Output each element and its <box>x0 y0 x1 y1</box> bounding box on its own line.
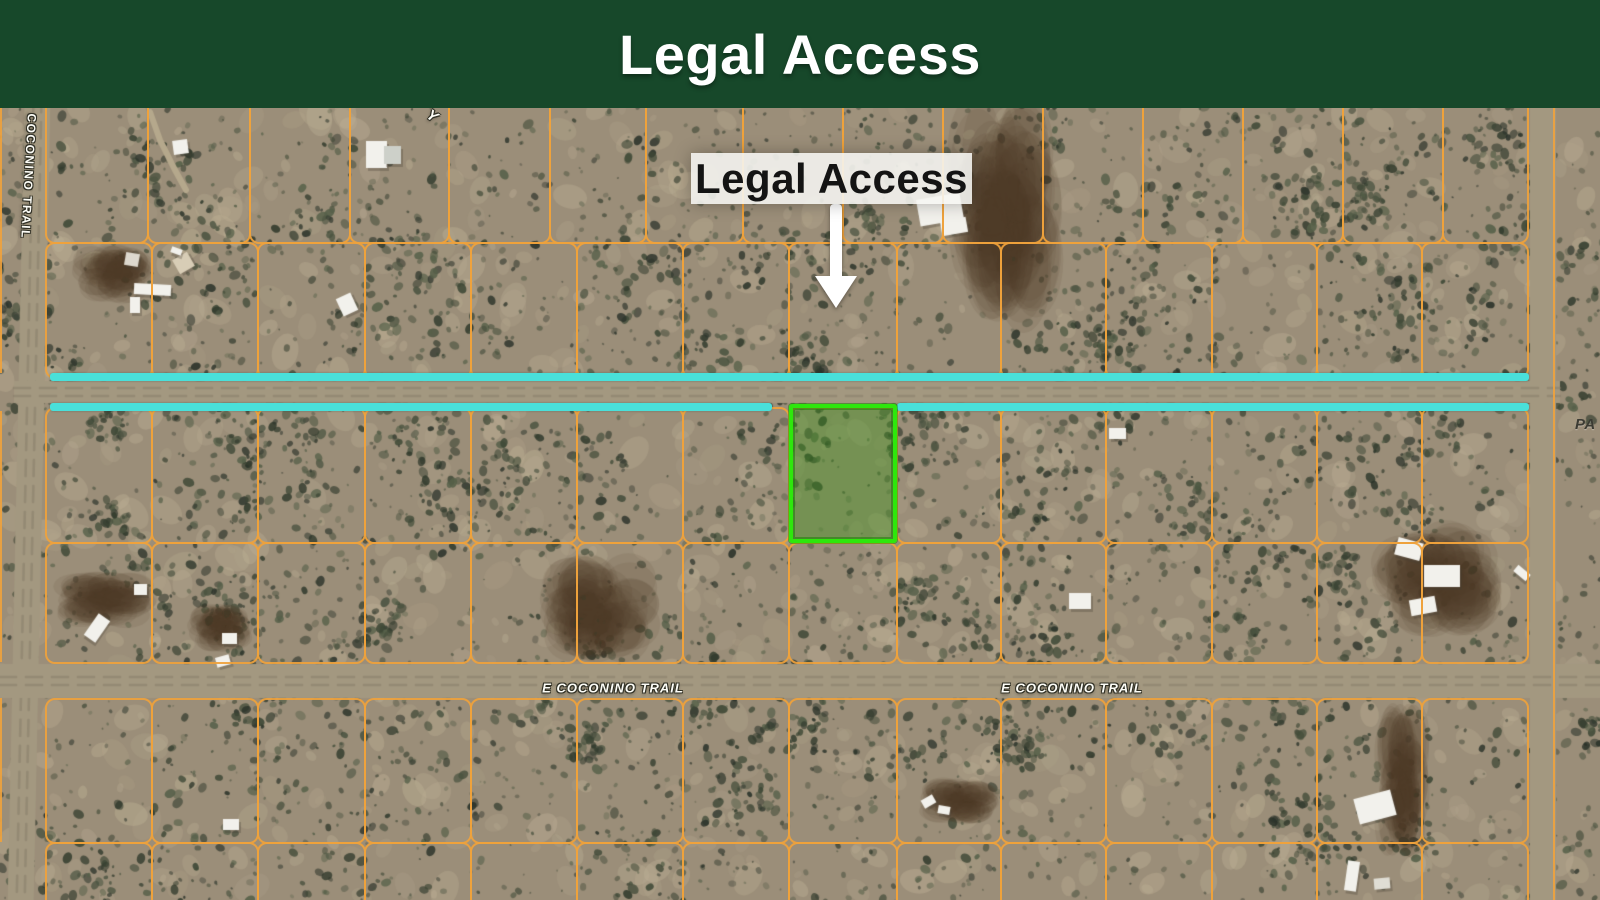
legal-access-highlight-line <box>897 403 1529 411</box>
partial-place-label: PA <box>1575 416 1596 433</box>
road-label-e-coconino-trail-west: E COCONINO TRAIL <box>542 681 684 696</box>
legal-access-graphic: Legal Access E COCONINO TRAIL E COCONINO… <box>0 0 1600 900</box>
callout-label: Legal Access <box>695 158 968 200</box>
road-label-e-coconino-trail-east: E COCONINO TRAIL <box>1001 681 1143 696</box>
arrow-down-icon <box>815 276 857 308</box>
header-banner: Legal Access <box>0 0 1600 108</box>
arrow-shaft <box>830 204 842 280</box>
legal-access-highlight-line <box>50 373 1529 381</box>
satellite-map: E COCONINO TRAIL E COCONINO TRAIL E COCO… <box>0 108 1600 900</box>
legal-access-callout: Legal Access <box>691 153 972 204</box>
page-title: Legal Access <box>619 22 981 87</box>
legal-access-highlight-line <box>50 403 772 411</box>
subject-property-outline <box>789 404 897 543</box>
